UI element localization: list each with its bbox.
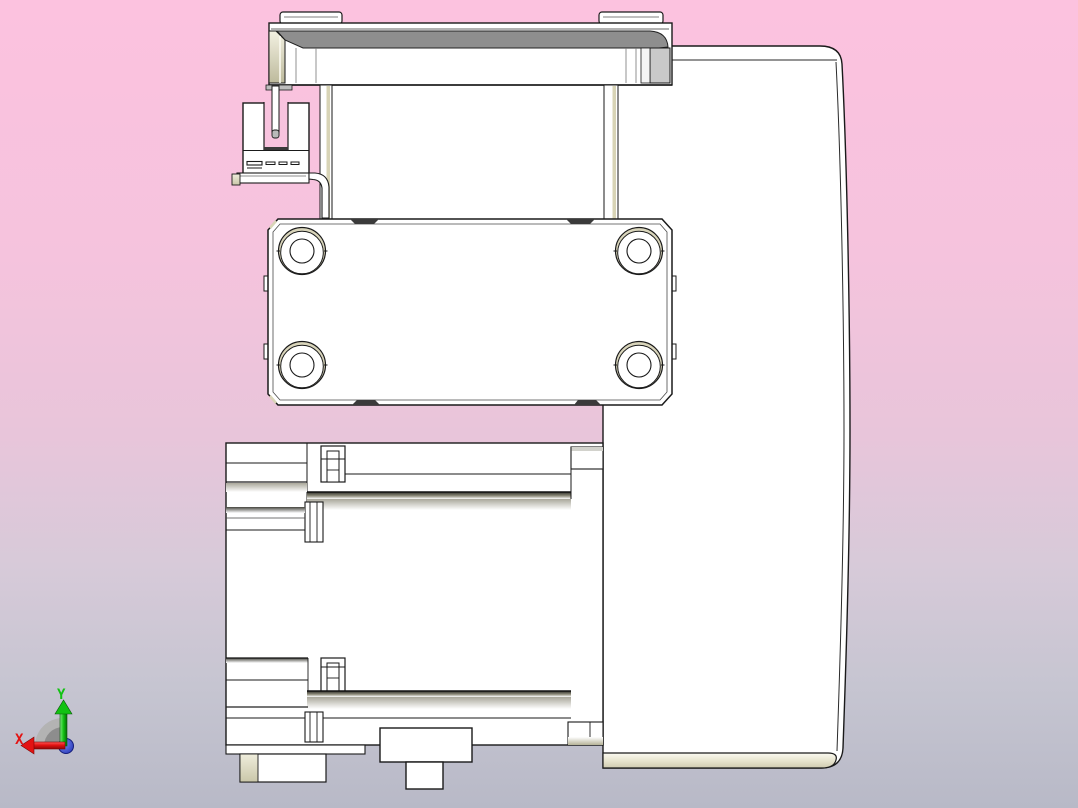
shaded-band bbox=[307, 499, 571, 510]
screw-slot bbox=[327, 663, 339, 695]
guide-rail-band bbox=[307, 691, 571, 697]
panel-bottom-strip bbox=[603, 753, 836, 768]
rail-left-end-cap bbox=[269, 31, 285, 83]
carriage-plate bbox=[264, 219, 676, 405]
rail-tab-left bbox=[280, 12, 342, 24]
guide-rail-band bbox=[307, 492, 571, 499]
cad-canvas[interactable]: X Y bbox=[0, 0, 1078, 808]
sensor-base-strip bbox=[237, 173, 309, 183]
screw-slot bbox=[327, 451, 339, 482]
left-foot-end bbox=[240, 754, 258, 782]
sensor-flag-tip bbox=[272, 130, 279, 138]
sensor-base-end bbox=[232, 174, 240, 185]
screw-head-small bbox=[305, 502, 323, 542]
shaded-band bbox=[568, 737, 603, 745]
shaded-band bbox=[226, 658, 308, 663]
base-plate-strip bbox=[226, 745, 365, 754]
center-foot-pad bbox=[406, 762, 443, 789]
center-foot bbox=[380, 728, 472, 762]
edge-line bbox=[641, 48, 650, 83]
y-axis-label: Y bbox=[57, 687, 66, 703]
shaded-band bbox=[571, 447, 603, 451]
axis-triad: X Y bbox=[15, 687, 74, 754]
x-axis-label: X bbox=[15, 732, 24, 748]
sensor-flag-pin bbox=[272, 86, 279, 132]
rail-tab-right bbox=[599, 12, 663, 24]
sensor-bracket bbox=[232, 86, 329, 218]
rail-right-end-cap bbox=[650, 48, 670, 83]
cad-viewport[interactable]: X Y bbox=[0, 0, 1078, 808]
lower-rail-assembly bbox=[226, 443, 603, 789]
plate-outline bbox=[268, 219, 672, 405]
rail-top-face bbox=[277, 31, 668, 48]
sensor-mount-arm bbox=[309, 173, 329, 218]
base-panel bbox=[603, 46, 850, 768]
base-panel-outline bbox=[603, 46, 850, 768]
slider-rail bbox=[266, 12, 672, 90]
shaded-band bbox=[226, 507, 305, 513]
screw-head-small bbox=[305, 712, 323, 742]
leg-chamfer bbox=[613, 86, 617, 219]
shaded-band bbox=[226, 483, 307, 492]
sensor-slot-shadow bbox=[264, 147, 288, 151]
actuator-body bbox=[322, 82, 610, 222]
shaded-band bbox=[307, 697, 571, 709]
